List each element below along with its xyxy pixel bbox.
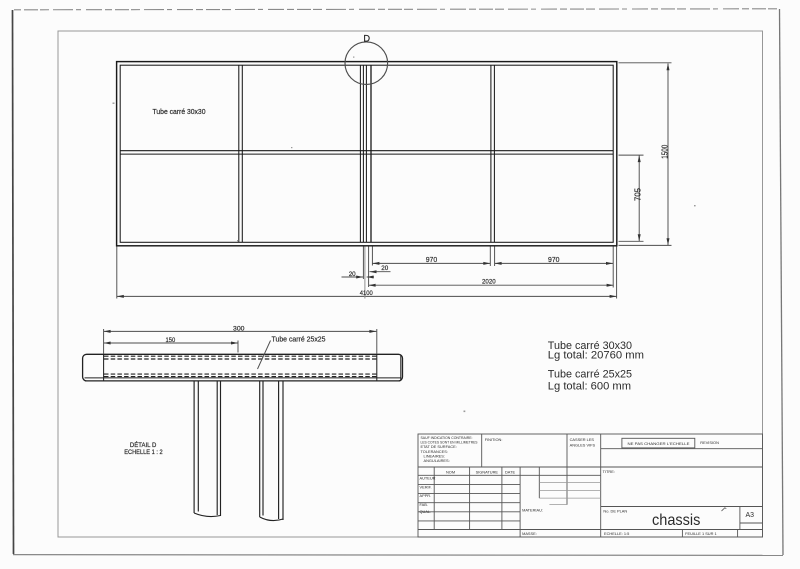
svg-text:ANGLES VIFS: ANGLES VIFS: [570, 443, 596, 448]
svg-text:chassis: chassis: [652, 512, 700, 529]
svg-text:REVISION: REVISION: [700, 440, 719, 445]
svg-text:AUTEUR: AUTEUR: [420, 476, 436, 481]
svg-text:FAB.: FAB.: [420, 502, 428, 507]
svg-text:SIGNATURE: SIGNATURE: [476, 470, 499, 475]
svg-text:ECHELLE: 1:5: ECHELLE: 1:5: [604, 531, 629, 536]
svg-text:FEUILLE 1 SUR 1: FEUILLE 1 SUR 1: [685, 531, 717, 536]
svg-text:No. DE PLAN: No. DE PLAN: [603, 508, 627, 513]
svg-text:MASSE:: MASSE:: [522, 531, 537, 536]
svg-text:2020: 2020: [482, 279, 496, 286]
svg-text:TITRE:: TITRE:: [603, 469, 615, 474]
svg-text:Tube carré 25x25: Tube carré 25x25: [272, 336, 326, 343]
svg-text:VERIF.: VERIF.: [420, 484, 432, 489]
svg-text:4100: 4100: [360, 290, 373, 297]
svg-text:APPR.: APPR.: [420, 493, 432, 498]
svg-text:Lg total: 20760 mm: Lg total: 20760 mm: [548, 350, 644, 362]
svg-text:QUAL.: QUAL.: [420, 509, 432, 514]
svg-text:Tube carré 30x30: Tube carré 30x30: [153, 107, 206, 116]
svg-text:ANGULAIRES:: ANGULAIRES:: [424, 458, 450, 463]
svg-text:DATE: DATE: [505, 470, 515, 475]
svg-text:705: 705: [632, 188, 642, 201]
svg-text:150: 150: [166, 337, 176, 344]
svg-text:A3: A3: [746, 510, 755, 519]
svg-text:Tube carré 25x25: Tube carré 25x25: [548, 369, 632, 381]
svg-text:300: 300: [233, 325, 245, 332]
svg-text:CASSER LES: CASSER LES: [570, 437, 595, 442]
svg-text:20: 20: [381, 265, 388, 272]
svg-text:Lg total: 600 mm: Lg total: 600 mm: [548, 380, 631, 392]
svg-text:MATERIAU:: MATERIAU:: [522, 507, 543, 512]
svg-text:970: 970: [548, 255, 560, 264]
svg-text:D: D: [363, 33, 370, 43]
svg-text:970: 970: [426, 255, 438, 264]
svg-text:NE PAS CHANGER L'ECHELLE: NE PAS CHANGER L'ECHELLE: [628, 441, 690, 446]
svg-text:1500: 1500: [660, 145, 670, 159]
svg-text:NOM: NOM: [446, 470, 455, 475]
svg-text:FINITION:: FINITION:: [485, 437, 503, 442]
svg-text:20: 20: [349, 271, 356, 278]
svg-text:ECHELLE 1 : 2: ECHELLE 1 : 2: [124, 449, 163, 456]
